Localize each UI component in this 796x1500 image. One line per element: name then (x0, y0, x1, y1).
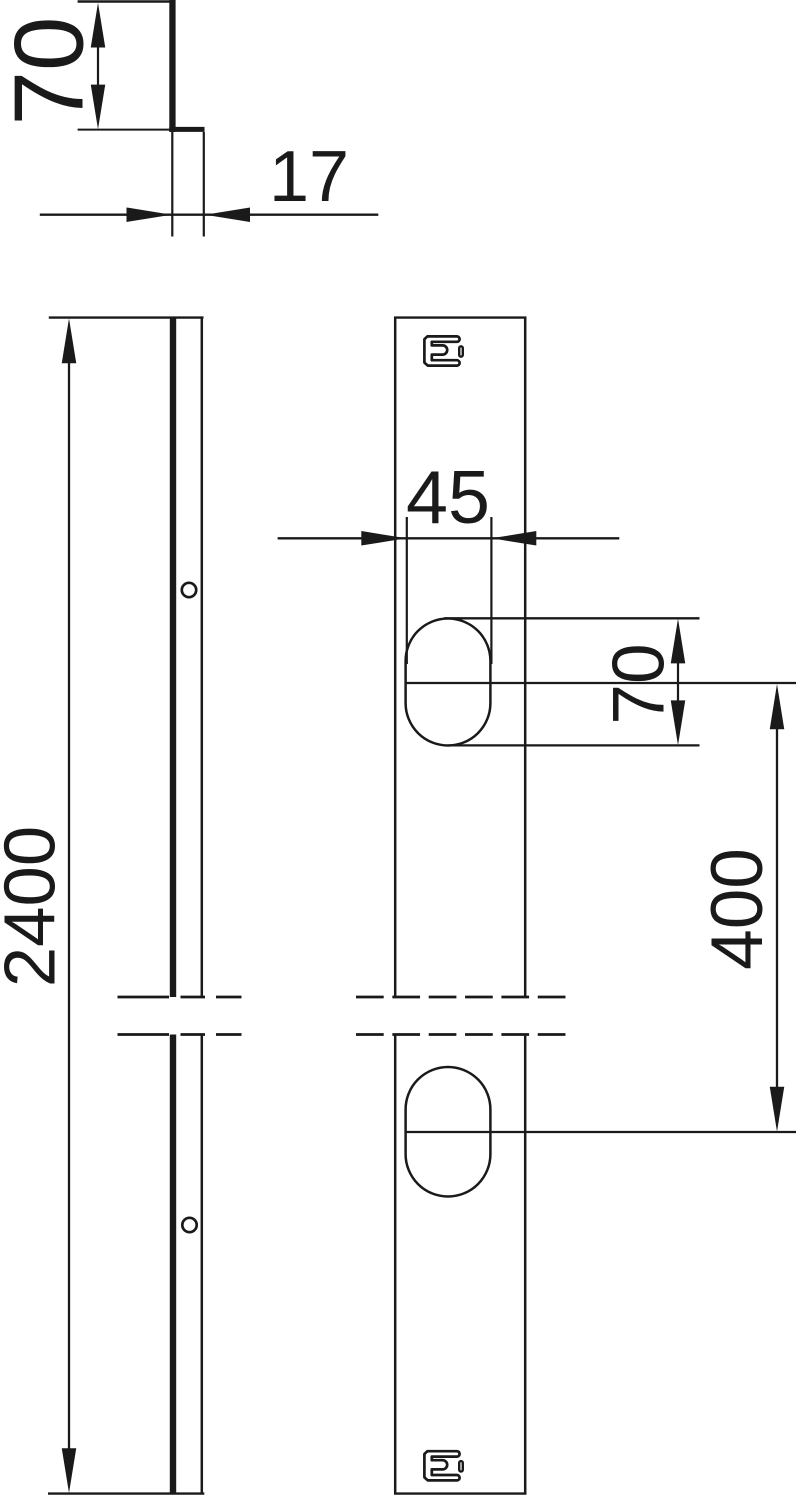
svg-text:17: 17 (269, 137, 349, 217)
svg-text:70: 70 (599, 643, 680, 724)
svg-text:45: 45 (406, 455, 490, 539)
svg-text:400: 400 (697, 848, 778, 970)
svg-text:70: 70 (0, 16, 104, 125)
svg-text:2400: 2400 (0, 826, 71, 987)
